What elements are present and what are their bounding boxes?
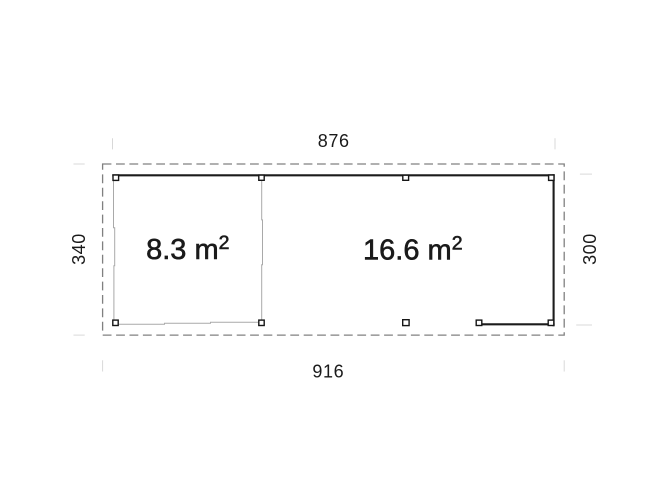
- svg-text:340: 340: [69, 233, 89, 265]
- svg-text:300: 300: [580, 233, 600, 265]
- svg-text:16.6 m2: 16.6 m2: [363, 233, 463, 267]
- svg-text:876: 876: [318, 131, 350, 151]
- svg-text:8.3 m2: 8.3 m2: [146, 232, 229, 266]
- svg-text:916: 916: [312, 362, 344, 382]
